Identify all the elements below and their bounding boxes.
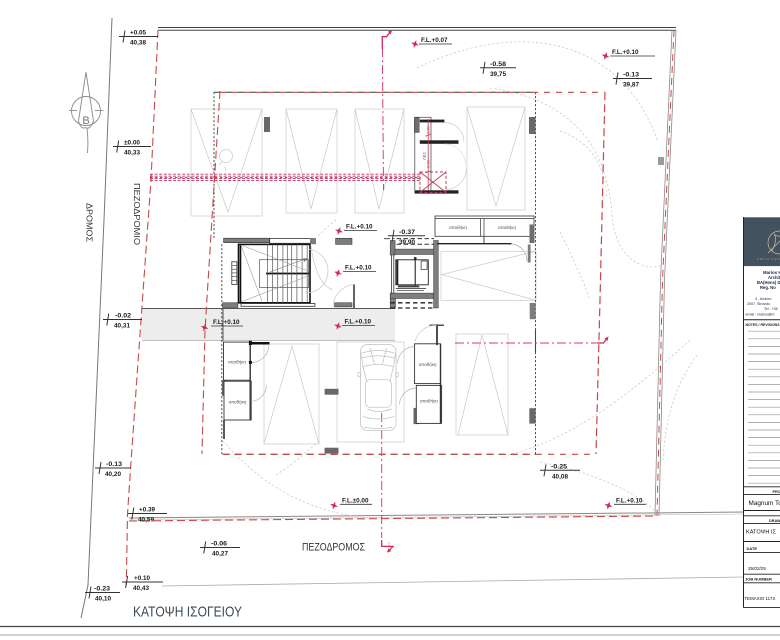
svg-text:JOB NUMBER: JOB NUMBER xyxy=(745,577,772,582)
svg-text:F.L.+0.10: F.L.+0.10 xyxy=(345,319,372,326)
svg-text:-0.13: -0.13 xyxy=(106,461,122,468)
svg-text:-0.13: -0.13 xyxy=(623,72,639,79)
svg-text:F.L.±0.00: F.L.±0.00 xyxy=(342,497,369,504)
svg-text:DATE: DATE xyxy=(747,546,758,551)
svg-text:B: B xyxy=(82,115,89,127)
svg-text:ΤΕΜΑΧΙΟ 1173: ΤΕΜΑΧΙΟ 1173 xyxy=(745,596,776,601)
svg-text:-0.37: -0.37 xyxy=(399,229,415,236)
svg-text:αποθήκη: αποθήκη xyxy=(419,361,437,367)
svg-text:-0.02: -0.02 xyxy=(115,313,131,320)
svg-text:DRAWING: DRAWING xyxy=(769,519,780,523)
svg-text:40,33: 40,33 xyxy=(124,150,140,157)
svg-text:PROJECT: PROJECT xyxy=(773,490,780,494)
svg-text:4 , Andreo: 4 , Andreo xyxy=(755,297,771,301)
svg-text:ARCHITECTS: ARCHITECTS xyxy=(757,257,780,261)
svg-text:F.L.+0.10: F.L.+0.10 xyxy=(213,319,240,326)
svg-text:ΚΑΤΟΨΗ ΙΣΟΓΕΙΟΥ: ΚΑΤΟΨΗ ΙΣΟΓΕΙΟΥ xyxy=(133,605,242,621)
svg-text:αποθήκη: αποθήκη xyxy=(228,359,246,365)
svg-text:email : marios@m: email : marios@m xyxy=(746,313,775,317)
svg-text:ΠΕΖΟΔΡΟΜΙΟ: ΠΕΖΟΔΡΟΜΙΟ xyxy=(132,183,142,245)
svg-text:Tel : +35: Tel : +35 xyxy=(764,307,778,311)
svg-text:ΠΕΖΟΔΡΟΜΟΣ: ΠΕΖΟΔΡΟΜΟΣ xyxy=(302,542,365,554)
svg-text:Magnum To: Magnum To xyxy=(749,500,780,507)
svg-text:1.00: 1.00 xyxy=(426,125,431,134)
svg-text:40,43: 40,43 xyxy=(133,585,149,592)
svg-text:F.L.+0.10: F.L.+0.10 xyxy=(346,224,373,231)
svg-text:±0.00: ±0.00 xyxy=(124,140,140,147)
svg-text:αποθήκη: αποθήκη xyxy=(420,398,438,404)
svg-text:40,27: 40,27 xyxy=(212,551,228,558)
svg-text:ΚΑΤΟΨΗ ΙΣ: ΚΑΤΟΨΗ ΙΣ xyxy=(746,530,777,536)
svg-text:αποθήκη: αποθήκη xyxy=(449,224,467,230)
svg-text:40,59: 40,59 xyxy=(138,517,154,524)
svg-text:αποθήκη: αποθήκη xyxy=(498,224,516,230)
svg-text:ΔΡΟΜΟΣ: ΔΡΟΜΟΣ xyxy=(85,203,95,242)
svg-text:40,38: 40,38 xyxy=(130,40,146,47)
svg-text:39,90: 39,90 xyxy=(399,239,415,246)
svg-text:F.L.+0.07: F.L.+0.07 xyxy=(421,37,448,44)
svg-text:Reg. No: Reg. No xyxy=(760,285,776,290)
svg-text:39,87: 39,87 xyxy=(623,82,639,89)
svg-text:+0.05: +0.05 xyxy=(130,30,146,37)
svg-text:NOTES / REVISIONS: NOTES / REVISIONS xyxy=(746,323,780,327)
svg-text:-0.25: -0.25 xyxy=(551,463,567,470)
svg-text:F.L.+0.10: F.L.+0.10 xyxy=(345,265,372,272)
svg-text:25/02/25: 25/02/25 xyxy=(748,566,766,571)
svg-text:S: S xyxy=(388,542,391,547)
svg-text:-0.23: -0.23 xyxy=(94,586,110,593)
svg-text:40,08: 40,08 xyxy=(552,473,568,480)
svg-text:+0.10: +0.10 xyxy=(134,575,150,582)
svg-text:+0.39: +0.39 xyxy=(139,507,155,514)
svg-text:F.L.+0.10: F.L.+0.10 xyxy=(616,497,643,504)
svg-text:40,20: 40,20 xyxy=(105,471,121,478)
svg-text:40,31: 40,31 xyxy=(114,323,130,330)
svg-text:40,10: 40,10 xyxy=(95,596,111,603)
svg-text:F.L.+0.10: F.L.+0.10 xyxy=(612,49,639,56)
svg-text:-0.06: -0.06 xyxy=(211,541,227,548)
svg-text:2007, Strovolo: 2007, Strovolo xyxy=(747,302,770,306)
svg-text:-0.58: -0.58 xyxy=(490,61,506,68)
svg-text:ΛΕΞ: ΛΕΞ xyxy=(422,152,427,160)
svg-text:αποθήκη: αποθήκη xyxy=(229,399,247,405)
svg-text:39,75: 39,75 xyxy=(490,71,506,78)
